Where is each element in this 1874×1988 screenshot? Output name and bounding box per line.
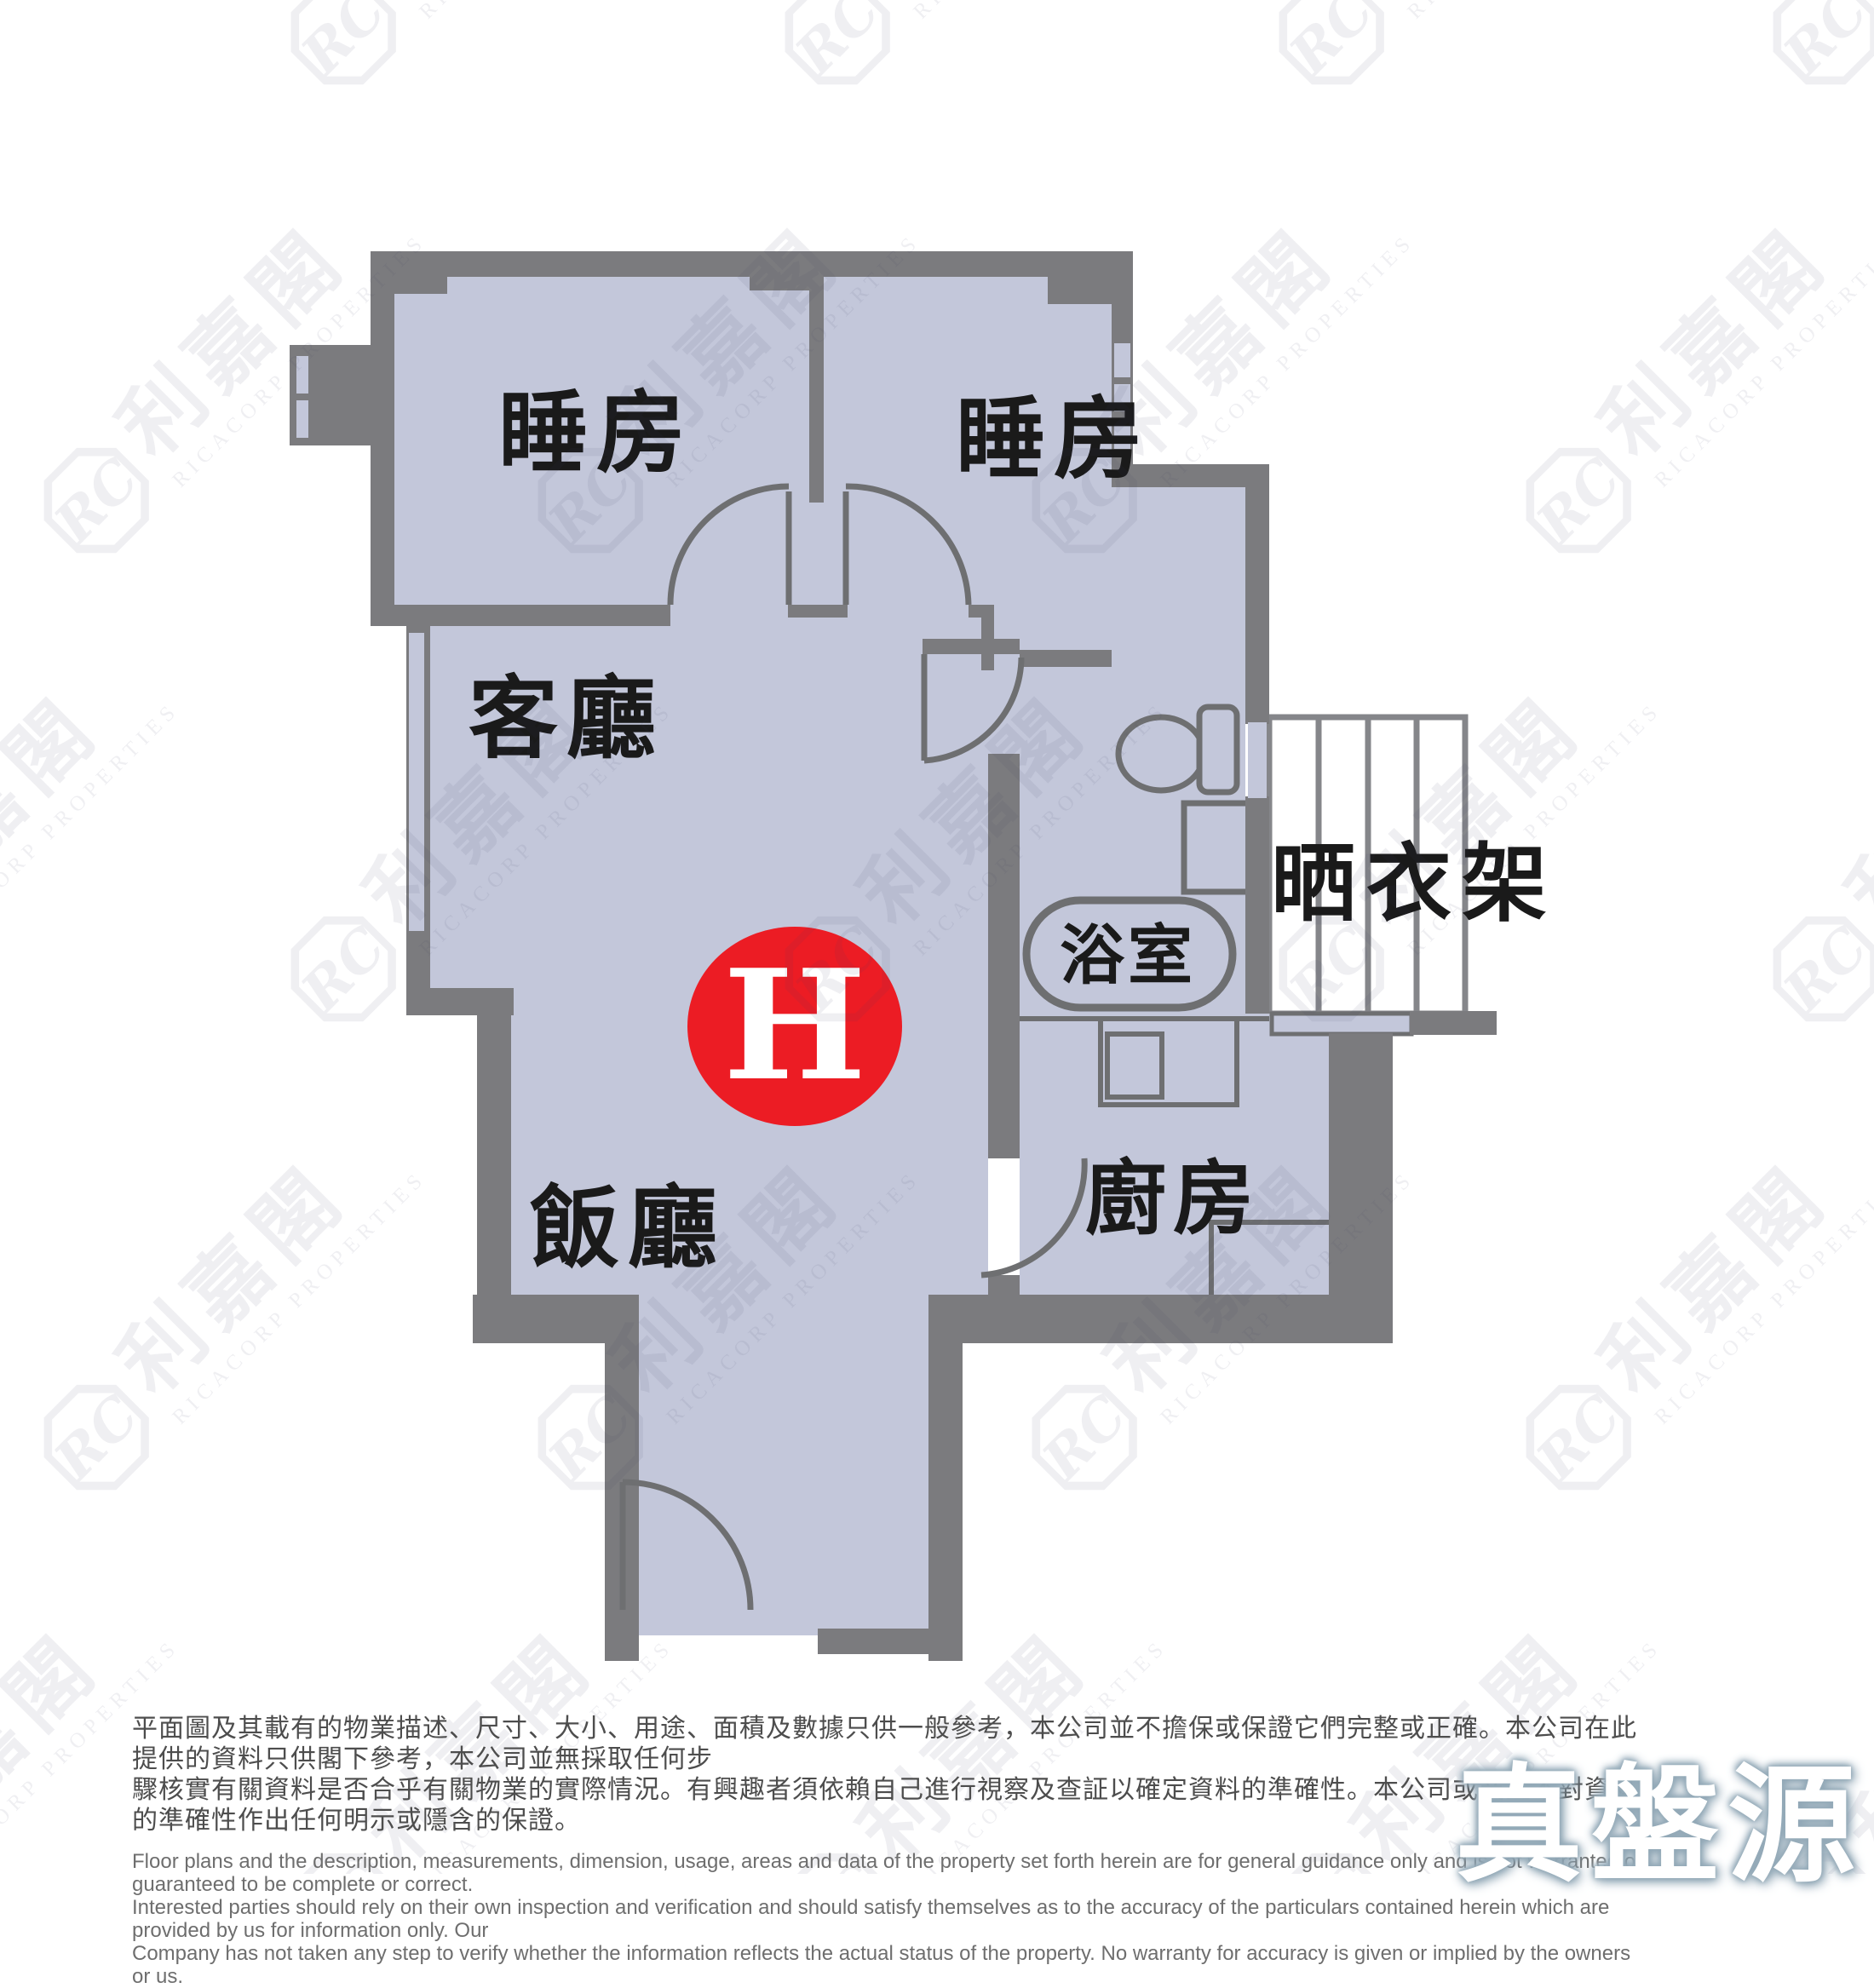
source-logo: 真盤源 bbox=[1455, 1722, 1864, 1907]
disclaimer-en-line: Company has not taken any step to verify… bbox=[132, 1942, 1648, 1988]
bay-window bbox=[296, 400, 308, 438]
rack-window bbox=[1272, 1014, 1411, 1034]
living-window bbox=[409, 633, 424, 931]
disclaimer-en-block: Floor plans and the description, measure… bbox=[132, 1850, 1648, 1988]
toilet-tank-icon bbox=[1199, 707, 1237, 792]
drying-rack-label: 晒衣架 bbox=[1271, 833, 1557, 934]
bedroom2-window bbox=[1114, 343, 1130, 377]
disclaimer-en-line: Floor plans and the description, measure… bbox=[132, 1850, 1648, 1896]
living-area bbox=[430, 605, 988, 990]
unit-badge: H bbox=[687, 927, 902, 1126]
bay-window bbox=[296, 356, 308, 394]
bathroom-window bbox=[1248, 722, 1267, 798]
kitchen-label: 廚房 bbox=[1085, 1152, 1261, 1246]
disclaimer: 平面圖及其載有的物業描述、尺寸、大小、用途、面積及數據只供一般參考，本公司並不擔… bbox=[132, 1714, 1648, 1988]
partition-gap-area bbox=[809, 503, 824, 605]
dining-label: 飯廳 bbox=[530, 1175, 726, 1280]
bedroom2-label: 睡房 bbox=[956, 386, 1152, 491]
bedroom-partition-wall bbox=[809, 277, 824, 503]
living-label: 客廳 bbox=[468, 665, 664, 771]
bathroom-label: 浴室 bbox=[1060, 917, 1196, 993]
corridor-area bbox=[639, 1295, 928, 1635]
toilet-icon bbox=[1118, 717, 1204, 790]
floor-plan: 睡房 睡房 客廳 飯廳 廚房 浴室 晒衣架 H bbox=[0, 0, 1874, 1874]
bedroom1-label: 睡房 bbox=[498, 380, 694, 486]
disclaimer-en-line: Interested parties should rely on their … bbox=[132, 1896, 1648, 1942]
unit-badge-letter: H bbox=[723, 936, 866, 1114]
disclaimer-cn-line: 驟核實有關資料是否合乎有關物業的實際情況。有興趣者須依賴自己進行視察及查証以確定… bbox=[132, 1775, 1648, 1836]
disclaimer-cn-line: 平面圖及其載有的物業描述、尺寸、大小、用途、面積及數據只供一般參考，本公司並不擔… bbox=[132, 1714, 1648, 1775]
